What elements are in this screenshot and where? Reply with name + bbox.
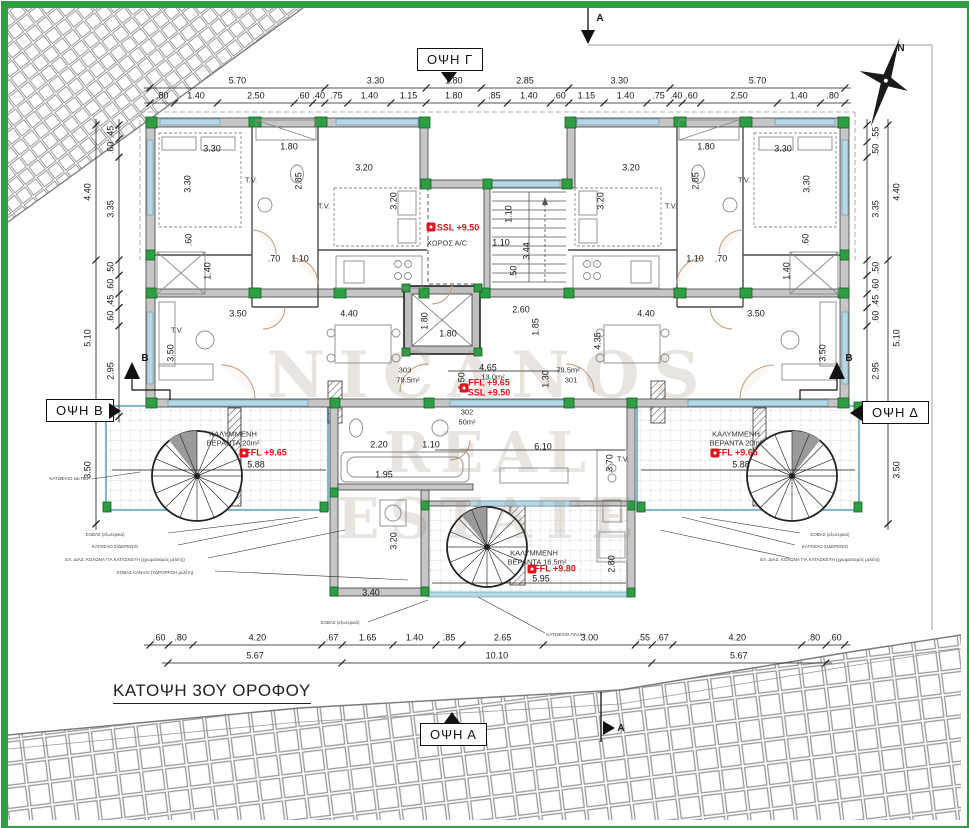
elevation-label-top: ΟΨΗ Γ [417, 48, 483, 71]
drawing-title: ΚΑΤΟΨΗ 3ΟΥ ΟΡΟΦΟΥ [113, 681, 311, 704]
elevation-pointer-left [109, 403, 121, 419]
elevation-label-bottom: ΟΨΗ Α [420, 723, 487, 746]
elevation-pointer-top [441, 72, 457, 83]
elevation-label-left: ΟΨΗ Β [46, 399, 114, 422]
elevation-pointer-right [850, 405, 862, 421]
floor-plan-drawing: NICANOS REAL ESTATE [0, 0, 969, 828]
elevation-pointer-bottom [444, 712, 460, 723]
elevation-label-right: ΟΨΗ Δ [862, 401, 929, 424]
